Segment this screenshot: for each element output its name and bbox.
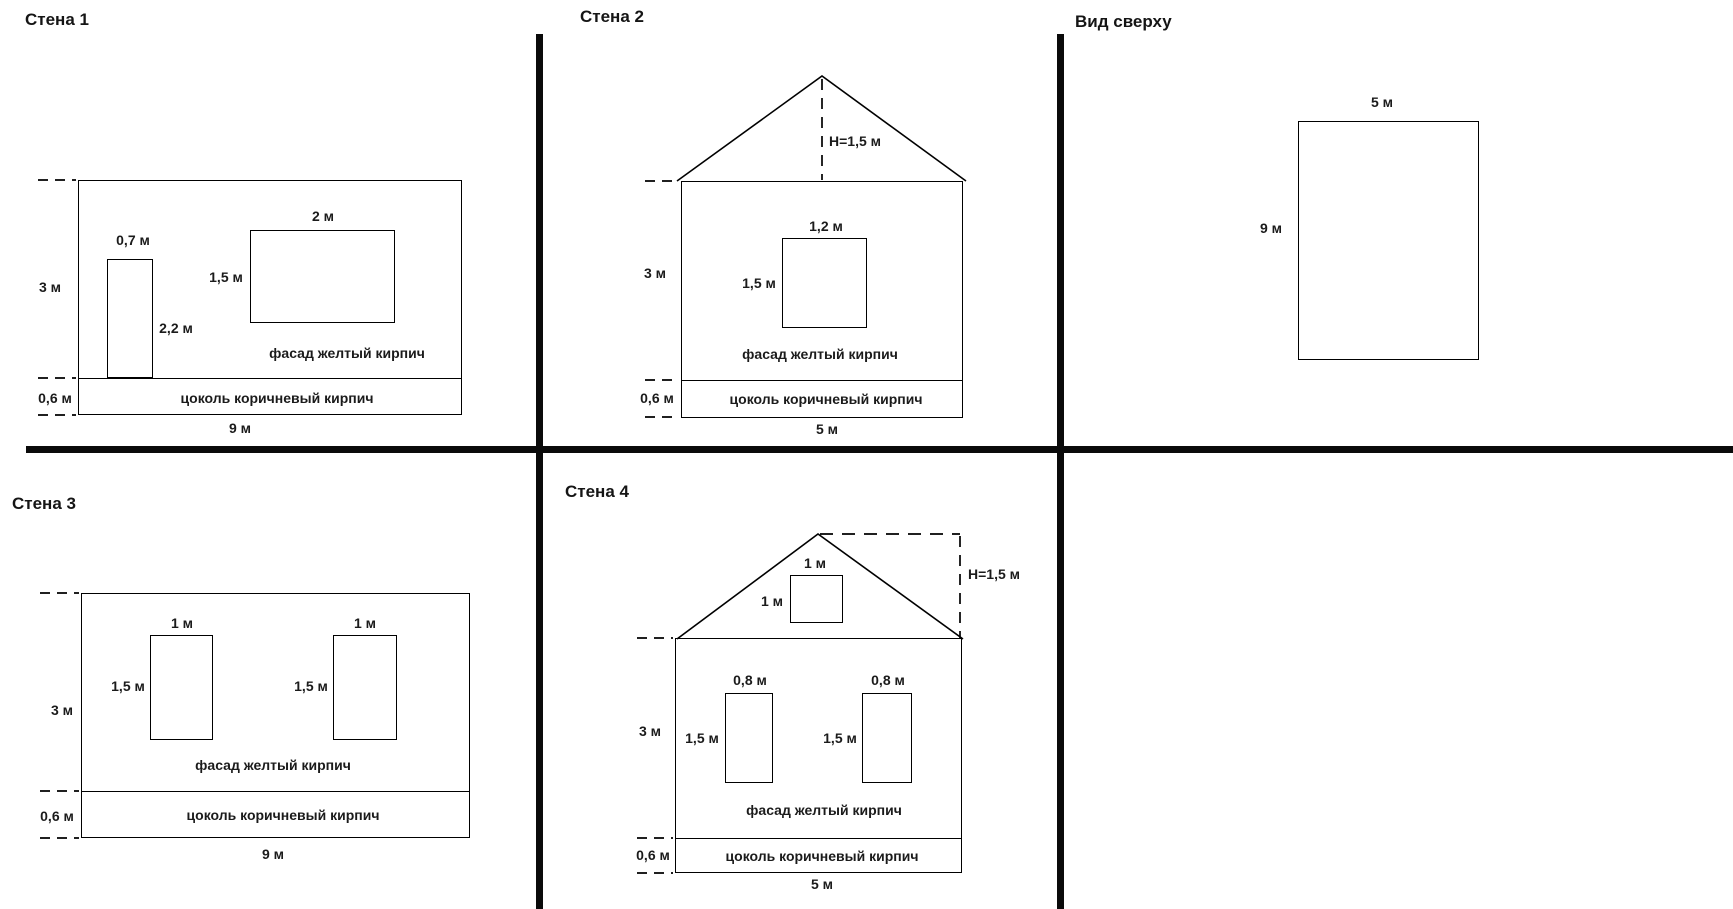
wall4-plinth-line xyxy=(675,838,962,839)
wall1-facade-label: фасад желтый кирпич xyxy=(269,345,425,361)
wall4-plinth-height-label: 0,6 м xyxy=(636,847,670,863)
wall3-plinth-height-label: 0,6 м xyxy=(40,808,74,824)
top-view-width-label: 5 м xyxy=(1371,94,1393,110)
wall3-window-1 xyxy=(150,635,213,740)
grid-divider-vertical-right xyxy=(1057,34,1064,909)
wall4-window1-height-label: 1,5 м xyxy=(685,730,719,746)
wall3-height-label: 3 м xyxy=(51,702,73,718)
wall4-roof-height-label: H=1,5 м xyxy=(968,566,1020,582)
wall4-gable-window-width-label: 1 м xyxy=(804,555,826,571)
wall1-plinth-line xyxy=(78,378,462,379)
wall1-window-height-label: 1,5 м xyxy=(209,269,243,285)
wall4-window2-width-label: 0,8 м xyxy=(871,672,905,688)
grid-divider-horizontal xyxy=(26,446,1733,453)
wall2-title: Стена 2 xyxy=(580,7,644,27)
wall1-height-label: 3 м xyxy=(39,279,61,295)
wall3-window-2 xyxy=(333,635,397,740)
wall4-height-label: 3 м xyxy=(639,723,661,739)
wall4-window2-height-label: 1,5 м xyxy=(823,730,857,746)
wall1-window xyxy=(250,230,395,323)
wall2-width-label: 5 м xyxy=(816,421,838,437)
wall4-window-2 xyxy=(862,693,912,783)
wall4-title: Стена 4 xyxy=(565,482,629,502)
wall1-door xyxy=(107,259,153,378)
wall2-facade-label: фасад желтый кирпич xyxy=(742,346,898,362)
wall4-facade-label: фасад желтый кирпич xyxy=(746,802,902,818)
wall1-plinth-height-label: 0,6 м xyxy=(38,390,72,406)
blueprint-canvas: Стена 1 3 м 0,7 м 2,2 м 2 м 1,5 м фасад … xyxy=(0,0,1733,909)
wall2-height-label: 3 м xyxy=(644,265,666,281)
wall3-plinth-label: цоколь коричневый кирпич xyxy=(187,807,380,823)
wall2-window-height-label: 1,5 м xyxy=(742,275,776,291)
wall4-gable-window xyxy=(790,575,843,623)
wall3-plinth-line xyxy=(81,791,470,792)
wall2-roof-line xyxy=(677,76,966,181)
wall1-plinth-label: цоколь коричневый кирпич xyxy=(181,390,374,406)
top-view-title: Вид сверху xyxy=(1075,12,1172,32)
wall1-window-width-label: 2 м xyxy=(312,208,334,224)
wall4-window-1 xyxy=(725,693,773,783)
wall2-plinth-height-label: 0,6 м xyxy=(640,390,674,406)
wall3-title: Стена 3 xyxy=(12,494,76,514)
wall3-outline xyxy=(81,593,470,838)
wall4-window1-width-label: 0,8 м xyxy=(733,672,767,688)
wall2-window xyxy=(782,238,867,328)
wall2-window-width-label: 1,2 м xyxy=(809,218,843,234)
wall3-window1-height-label: 1,5 м xyxy=(111,678,145,694)
top-view-depth-label: 9 м xyxy=(1260,220,1282,236)
wall4-gable-window-height-label: 1 м xyxy=(761,593,783,609)
wall1-width-label: 9 м xyxy=(229,420,251,436)
top-view-outline xyxy=(1298,121,1479,360)
wall4-plinth-label: цоколь коричневый кирпич xyxy=(726,848,919,864)
wall3-window2-width-label: 1 м xyxy=(354,615,376,631)
wall3-width-label: 9 м xyxy=(262,846,284,862)
wall1-door-height-label: 2,2 м xyxy=(159,320,193,336)
wall1-title: Стена 1 xyxy=(25,10,89,30)
wall3-window1-width-label: 1 м xyxy=(171,615,193,631)
wall2-plinth-line xyxy=(681,380,963,381)
wall4-width-label: 5 м xyxy=(811,876,833,892)
wall3-window2-height-label: 1,5 м xyxy=(294,678,328,694)
wall2-roof-height-label: H=1,5 м xyxy=(829,133,881,149)
wall1-door-width-label: 0,7 м xyxy=(116,232,150,248)
wall3-facade-label: фасад желтый кирпич xyxy=(195,757,351,773)
wall2-plinth-label: цоколь коричневый кирпич xyxy=(730,391,923,407)
grid-divider-vertical-left xyxy=(536,34,543,909)
